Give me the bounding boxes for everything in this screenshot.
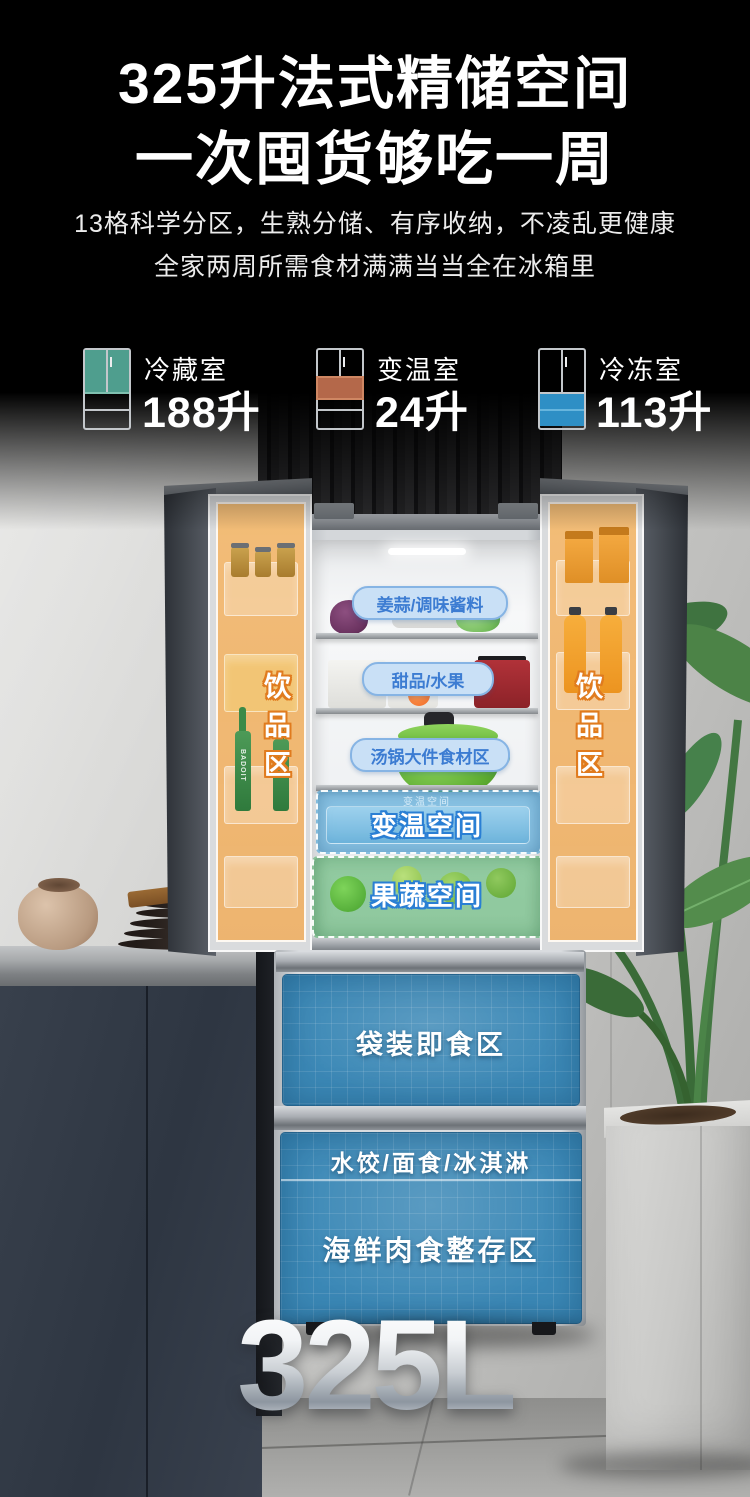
door-bin	[224, 856, 298, 908]
bottle-brand-text: BADOIT	[239, 749, 246, 782]
page-title-line1: 325升法式精储空间	[0, 38, 750, 120]
juice-carton	[565, 539, 593, 583]
page-description-line2: 全家两周所需食材满满当当全在冰箱里	[0, 247, 750, 283]
zone-label-pill-seasoning: 姜蒜/调味酱料	[352, 586, 508, 620]
interior-light	[388, 548, 466, 555]
drawer-rail	[274, 1106, 586, 1130]
promo-canvas: 姜蒜/调味酱料 甜品/水果 汤锅大件食材区 变温空间 变温空间 果蔬空间	[0, 0, 750, 1497]
page-description-line1: 13格科学分区，生熟分储、有序收纳，不凌乱更健康	[0, 204, 750, 240]
condiment-jar	[231, 547, 249, 577]
produce-drawer-label: 果蔬空间	[312, 876, 542, 913]
juice-carton-top	[565, 531, 593, 539]
zone-label-pill-dessert-fruit: 甜品/水果	[362, 662, 494, 696]
fridge-freezer-zone-icon	[538, 348, 586, 430]
juice-bottle-cap	[569, 607, 581, 615]
door-bin	[556, 856, 630, 908]
fridge-right-door: 饮品区	[540, 482, 688, 958]
spec-value-freezer: 113升	[596, 378, 712, 440]
door-bin	[556, 560, 630, 616]
freezer-zone-highlight	[540, 394, 584, 411]
drawer-rail	[276, 952, 584, 972]
ceramic-pot-opening	[38, 878, 80, 892]
fridge-left-door: BADOIT 饮品区	[164, 482, 312, 958]
fridge-fresh-zone-icon	[83, 348, 131, 430]
juice-carton	[599, 535, 629, 583]
glass-shelf	[316, 633, 538, 639]
page-title-line2: 一次囤货够吃一周	[0, 112, 750, 196]
spec-value-fresh: 188升	[142, 378, 261, 440]
jar-lid	[231, 543, 249, 548]
condiment-jar	[255, 551, 271, 577]
beverage-bottle: BADOIT	[235, 731, 251, 811]
left-door-zone-label: 饮品区	[256, 672, 295, 789]
fridge-variable-zone-icon	[316, 348, 364, 430]
freezer-drawer-2-label: 海鲜肉食整存区	[281, 1229, 581, 1269]
juice-bottle-cap	[605, 607, 617, 615]
variable-temp-label: 变温空间	[316, 806, 538, 843]
freezer-zone-highlight	[540, 411, 584, 426]
condiment-jar	[277, 547, 295, 577]
capacity-325l-text: 325L	[0, 1302, 750, 1430]
ceramic-pot	[18, 884, 98, 950]
beverage-bottle-neck	[239, 707, 246, 733]
jar-lid	[277, 543, 295, 548]
drawer-strip-divider	[281, 1179, 581, 1181]
spec-value-variable: 24升	[375, 378, 469, 440]
freezer-drawer-2-top-label: 水饺/面食/冰淇淋	[281, 1144, 581, 1178]
zone-label-pill-soup-pot: 汤锅大件食材区	[350, 738, 510, 772]
jar-lid	[255, 547, 271, 552]
door-bin	[224, 562, 298, 616]
freezer-drawer-1-label: 袋装即食区	[283, 1023, 579, 1062]
freezer-drawer-1: 袋装即食区	[282, 974, 580, 1106]
right-door-zone-label: 饮品区	[568, 672, 607, 789]
